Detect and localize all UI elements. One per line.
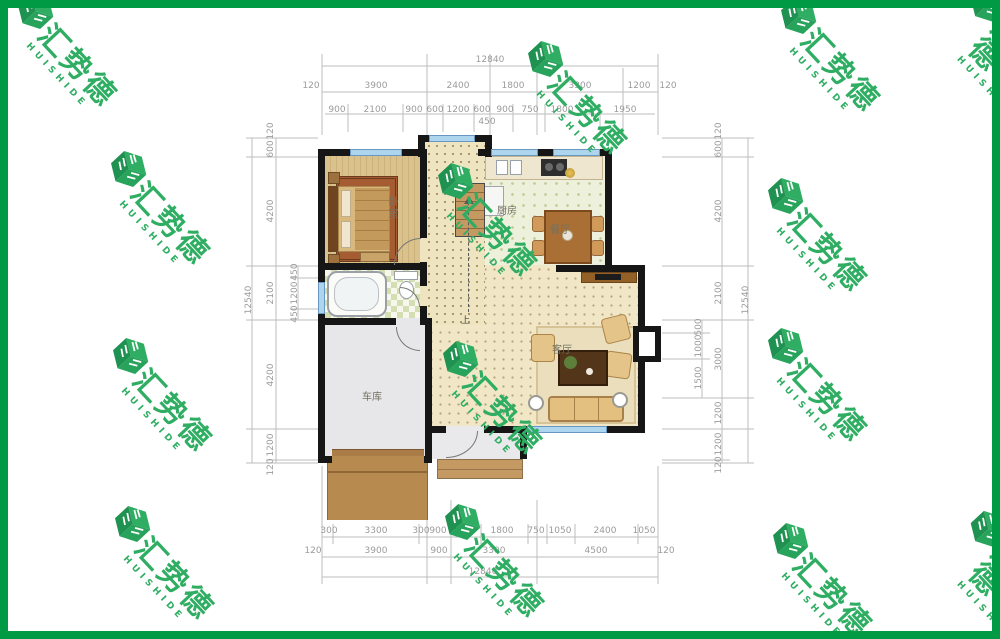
plant-decor [565, 168, 575, 178]
tv [595, 274, 621, 280]
dim-label: 4500 [585, 546, 608, 556]
dim-label: 750 [521, 105, 538, 115]
dim-label: 1950 [614, 105, 637, 115]
stairs-arrow-line [468, 202, 469, 312]
window [318, 282, 325, 314]
stove-burner [556, 163, 564, 171]
dim-label: 1200 [714, 402, 724, 425]
room-label-dining: 餐厅 [550, 221, 570, 236]
dim-label: 500 [694, 318, 704, 335]
dim-label: 120 [657, 546, 674, 556]
dim-label: 120 [266, 458, 276, 475]
toilet-tank [394, 271, 418, 280]
dim-label: 2100 [714, 282, 724, 305]
dim-label: 3900 [365, 81, 388, 91]
dim-label: 750 [527, 526, 544, 536]
dim-label: 1000 [694, 335, 704, 358]
dim-label: 600 [266, 140, 276, 157]
dim-label: 120 [302, 81, 319, 91]
bed-pillow [341, 221, 351, 248]
dim-label: 900 [328, 105, 345, 115]
dim-label: 600 [714, 140, 724, 157]
dim-label: 4200 [714, 200, 724, 223]
window [527, 426, 607, 433]
garage-door-opening [332, 456, 424, 463]
bathtub-basin [334, 277, 379, 311]
dimension-lines [0, 0, 1000, 639]
window [350, 149, 402, 156]
room-label-bedroom: 卧室 [384, 196, 399, 220]
dim-label: 3900 [365, 546, 388, 556]
porch-steps [437, 459, 523, 479]
dim-label: 4200 [266, 200, 276, 223]
bed-pillow [341, 190, 351, 217]
dresser [360, 252, 390, 262]
dim-label: 1200 [628, 81, 651, 91]
door-gap [420, 238, 427, 262]
dim-label: 600 [473, 105, 490, 115]
dim-label: 900 [429, 526, 446, 536]
coffee-table-plant [564, 356, 577, 369]
dim-label: 2100 [266, 282, 276, 305]
dim-label: 12540 [244, 286, 254, 315]
dim-label: 1150 [453, 526, 476, 536]
wall [605, 149, 612, 272]
dim-label: 120 [714, 122, 724, 139]
room-label-living: 客厅 [552, 341, 572, 356]
dim-label: 1200 [447, 105, 470, 115]
dim-label: 1200 [714, 433, 724, 456]
stove-burner [545, 163, 553, 171]
side-table [612, 392, 628, 408]
dim-label: 1800 [502, 81, 525, 91]
dim-label: 1800 [551, 105, 574, 115]
wall-bumpout [633, 326, 661, 362]
dim-label: 1800 [491, 526, 514, 536]
dim-label: 120 [659, 81, 676, 91]
dim-label: 300 [320, 526, 337, 536]
dim-label: 3300 [569, 81, 592, 91]
kitchen-sink [510, 160, 522, 175]
door-gap [420, 286, 427, 306]
dim-label: 1050 [633, 526, 656, 536]
dim-label: 2400 [594, 526, 617, 536]
wall [520, 426, 527, 459]
window [429, 135, 475, 142]
stairs-up-label: 上 [461, 313, 470, 326]
dim-label: 3300 [365, 526, 388, 536]
dim-label: 120 [304, 546, 321, 556]
side-table [528, 395, 544, 411]
dim-label: 1200 [290, 282, 300, 305]
dim-label: 900 [405, 105, 422, 115]
window [553, 149, 600, 156]
dim-label: 3000 [714, 348, 724, 371]
dim-label: 1200 [266, 434, 276, 457]
dim-label: 2400 [447, 81, 470, 91]
dim-label: 12840 [476, 55, 505, 65]
bed-headboard [328, 186, 338, 252]
floorplan-image: 1284012039002400180033001200120900210090… [0, 0, 1000, 639]
wall [425, 318, 432, 459]
dim-label: 120 [714, 456, 724, 473]
wall [318, 318, 325, 463]
dim-label: 600 [426, 105, 443, 115]
dim-label: 2100 [364, 105, 387, 115]
stairs [455, 183, 485, 237]
dim-label: 300 [412, 526, 429, 536]
dim-label: 450 [478, 117, 495, 127]
driveway-line [327, 471, 428, 473]
door-gap [396, 318, 420, 325]
garage-door-strip [332, 449, 424, 456]
room-label-garage: 车库 [362, 388, 382, 403]
wall [556, 265, 645, 272]
dining-chair [591, 240, 604, 256]
dim-label: 450 [290, 305, 300, 322]
kitchen-sink [496, 160, 508, 175]
dim-label: 900 [496, 105, 513, 115]
dim-label: 4200 [266, 364, 276, 387]
room-label-kitchen: 厨房 [497, 202, 517, 217]
dim-label: 450 [290, 263, 300, 280]
dim-label: 120 [266, 122, 276, 139]
dining-chair [591, 216, 604, 232]
dim-label: 12540 [741, 286, 751, 315]
nightstand [328, 172, 340, 184]
dim-label: 900 [430, 546, 447, 556]
dim-label: 12840 [469, 567, 498, 577]
dim-label: 3300 [483, 546, 506, 556]
coffee-table-cup [586, 368, 593, 375]
stairs-arrow-head [464, 196, 474, 204]
dim-label: 1500 [694, 367, 704, 390]
dim-label: 1050 [549, 526, 572, 536]
window [491, 149, 538, 156]
